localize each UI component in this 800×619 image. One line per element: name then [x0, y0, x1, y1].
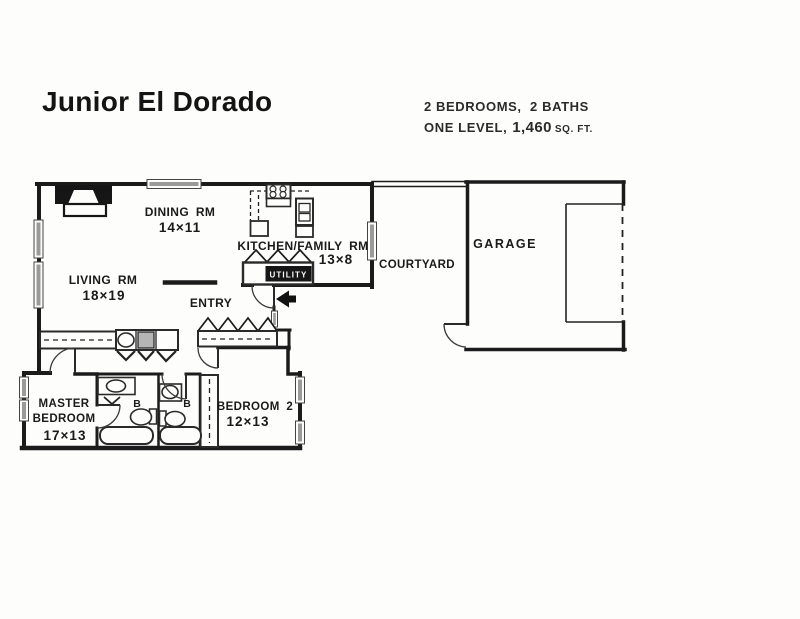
window-living-left-1	[34, 220, 43, 258]
window-bedroom2-right-2	[296, 421, 305, 444]
bathroom1-fixtures	[98, 378, 157, 445]
window-master-left-2	[20, 400, 29, 421]
spec-bed-bath: 2 BEDROOMS, 2 BATHS	[424, 99, 589, 114]
bath1-door	[97, 405, 120, 428]
spec-level: ONE LEVEL,	[424, 120, 507, 135]
bath2-tub	[160, 427, 201, 444]
svg-text:MASTER: MASTER	[39, 398, 90, 410]
bath1-tub	[100, 427, 153, 444]
entry-label: ENTRY	[190, 296, 232, 310]
oven-tower	[296, 199, 313, 226]
entry-closet	[198, 318, 277, 347]
master-closet	[40, 332, 116, 349]
svg-text:13×8: 13×8	[319, 252, 353, 267]
kitchen-cabinet-right	[296, 226, 313, 237]
kitchen-fixtures	[250, 185, 313, 238]
master-bedroom-label: MASTER BEDROOM 17×13	[33, 398, 96, 443]
spec-block: 2 BEDROOMS, 2 BATHS ONE LEVEL,1,460SQ. F…	[424, 96, 593, 140]
svg-text:ENTRY: ENTRY	[190, 296, 232, 310]
garage-side-door	[444, 324, 466, 347]
utility-label: UTILITY	[270, 271, 308, 280]
bath1-sink	[107, 380, 126, 392]
window-dining-top	[147, 180, 201, 189]
garage-door-bay	[566, 204, 623, 322]
master-bedroom-door	[50, 348, 75, 373]
svg-text:BEDROOM: BEDROOM	[33, 413, 96, 425]
bedroom2-label: BEDROOM 2 12×13	[217, 401, 293, 429]
page-title: Junior El Dorado	[42, 86, 272, 118]
bath1-label: B	[133, 398, 141, 410]
dining-room-label: DINING RM 14×11	[145, 205, 216, 235]
bath1-cabinet-mark	[104, 397, 120, 404]
courtyard-label: COURTYARD	[379, 259, 455, 271]
living-room-label: LIVING RM 18×19	[69, 273, 138, 303]
window-bedroom2-right-1	[296, 377, 305, 403]
svg-text:GARAGE: GARAGE	[473, 237, 537, 251]
exterior-walls	[22, 182, 625, 449]
kitchen-counter	[267, 199, 291, 207]
svg-text:LIVING RM: LIVING RM	[69, 273, 138, 287]
bathroom2-fixtures	[160, 384, 202, 444]
spec-area-unit: SQ. FT.	[555, 124, 593, 135]
vanity-sink	[118, 333, 134, 347]
bath1-toilet	[131, 409, 157, 425]
vanity-cabinet-marks	[117, 351, 176, 361]
spec-area-value: 1,460	[512, 119, 552, 136]
svg-text:BEDROOM 2: BEDROOM 2	[217, 401, 293, 413]
entry-arrow-icon	[276, 291, 296, 308]
range-cooktop	[267, 185, 291, 199]
hall-vanity	[116, 330, 178, 361]
svg-text:14×11: 14×11	[159, 220, 201, 235]
hearth	[64, 204, 106, 216]
fireplace	[55, 185, 112, 216]
svg-text:COURTYARD: COURTYARD	[379, 259, 455, 271]
window-living-left-2	[34, 262, 43, 308]
svg-text:17×13: 17×13	[44, 428, 87, 443]
floor-plan-page: Junior El Dorado 2 BEDROOMS, 2 BATHS ONE…	[0, 0, 800, 619]
bath2-toilet	[160, 411, 186, 427]
bifold-doors-entry	[198, 318, 277, 331]
bath2-label: B	[183, 398, 191, 410]
utility-closet: UTILITY	[243, 250, 313, 285]
bedroom2-closet	[201, 375, 219, 447]
window-master-left-1	[20, 377, 29, 398]
svg-text:18×19: 18×19	[83, 288, 126, 303]
svg-text:12×13: 12×13	[227, 414, 270, 429]
front-door	[252, 286, 296, 308]
garage-label: GARAGE	[473, 237, 537, 251]
window-courtyard-wall	[368, 222, 377, 260]
vanity-hamper	[138, 332, 154, 348]
bedroom2-door	[198, 348, 218, 368]
svg-text:KITCHEN/FAMILY RM: KITCHEN/FAMILY RM	[237, 239, 368, 253]
svg-text:DINING RM: DINING RM	[145, 205, 216, 219]
kitchen-cabinet-left	[251, 221, 269, 236]
